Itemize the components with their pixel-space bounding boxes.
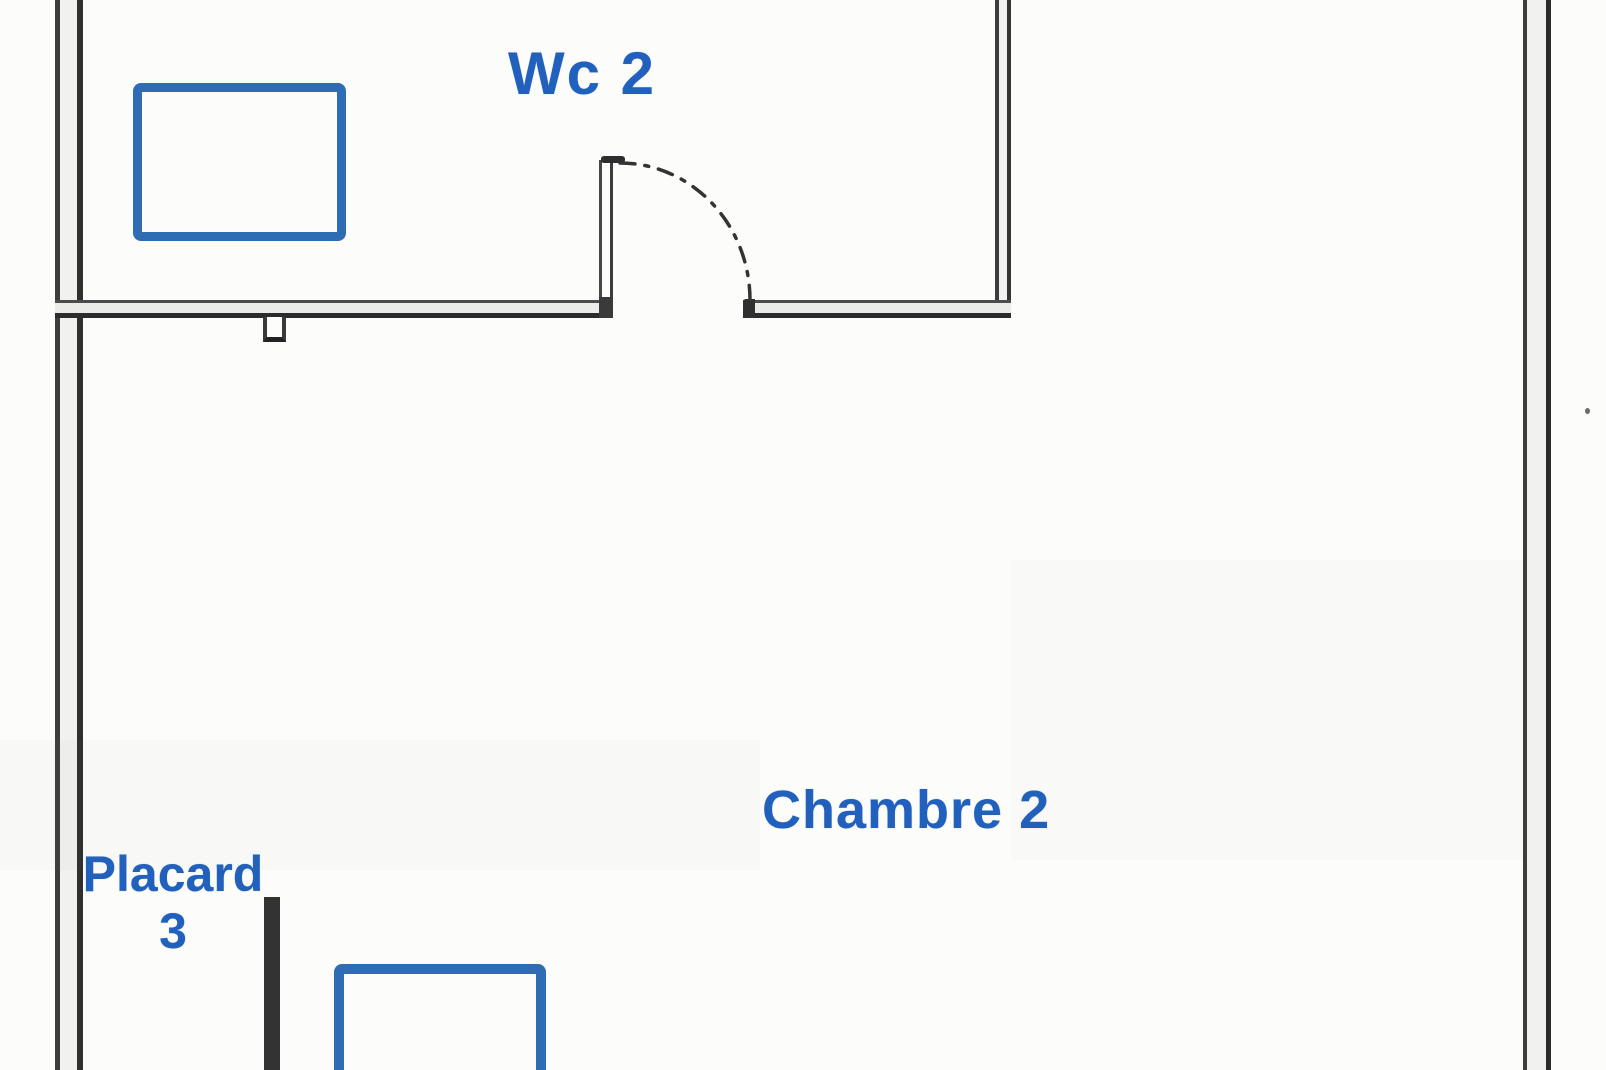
wall-wc-right [995,0,1011,317]
scan-speck-dot [1585,408,1590,414]
wall-stub-notch [263,317,286,342]
placard-label-text: Placard [75,846,271,903]
floor-plan: Wc 2 Chambre 2 Placard 3 [0,0,1606,1070]
room-label-wc2: Wc 2 [508,44,656,104]
door-swing-arc [598,148,773,323]
wall-wc-bottom-left-segment [55,300,613,318]
room-label-placard3: Placard 3 [75,846,271,960]
room-label-chambre2: Chambre 2 [762,783,1050,837]
wc-fixture-rect [133,83,346,241]
wall-right-exterior [1523,0,1551,1070]
scan-shading-band [1011,560,1523,860]
placard-fixture-rect [334,964,546,1070]
placard-label-number: 3 [75,903,271,960]
wall-wc-bottom-right-segment [743,300,1011,318]
